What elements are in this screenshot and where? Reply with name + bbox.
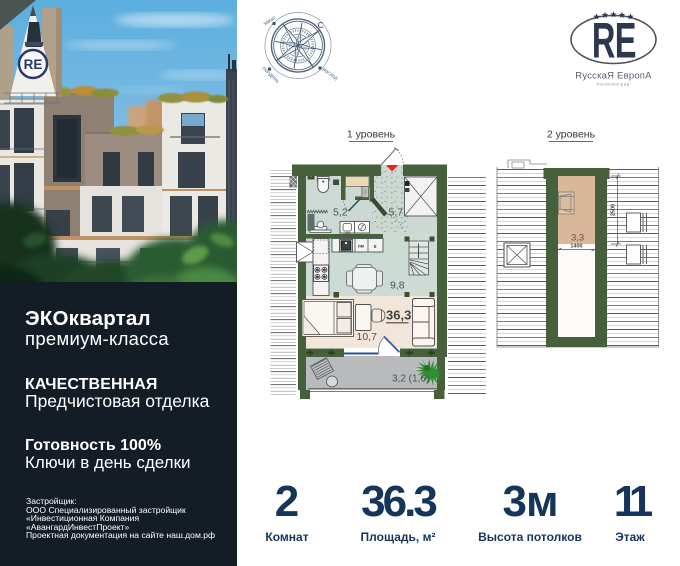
svg-text:С: С — [318, 20, 324, 30]
svg-text:3,3: 3,3 — [571, 233, 584, 244]
svg-text:2500: 2500 — [611, 204, 617, 216]
svg-text:1 уровень: 1 уровень — [347, 129, 396, 141]
svg-text:Калининград: Калининград — [597, 82, 630, 87]
svg-text:5,2: 5,2 — [333, 207, 348, 219]
svg-text:5,7: 5,7 — [389, 207, 404, 219]
svg-text:пм: пм — [358, 244, 365, 249]
svg-text:10,7: 10,7 — [357, 331, 378, 343]
svg-text:1400: 1400 — [570, 244, 582, 250]
svg-text:закат: закат — [262, 15, 277, 28]
svg-text:9,8: 9,8 — [390, 280, 405, 292]
svg-text:2 уровень: 2 уровень — [547, 129, 596, 141]
svg-text:RусскаЯ ЕвропА: RусскаЯ ЕвропА — [575, 71, 652, 82]
svg-text:36,3: 36,3 — [386, 308, 411, 323]
svg-text:восход: восход — [321, 67, 339, 82]
svg-text:RE: RE — [592, 12, 636, 68]
svg-text:3,2 (1,6): 3,2 (1,6) — [392, 374, 429, 385]
